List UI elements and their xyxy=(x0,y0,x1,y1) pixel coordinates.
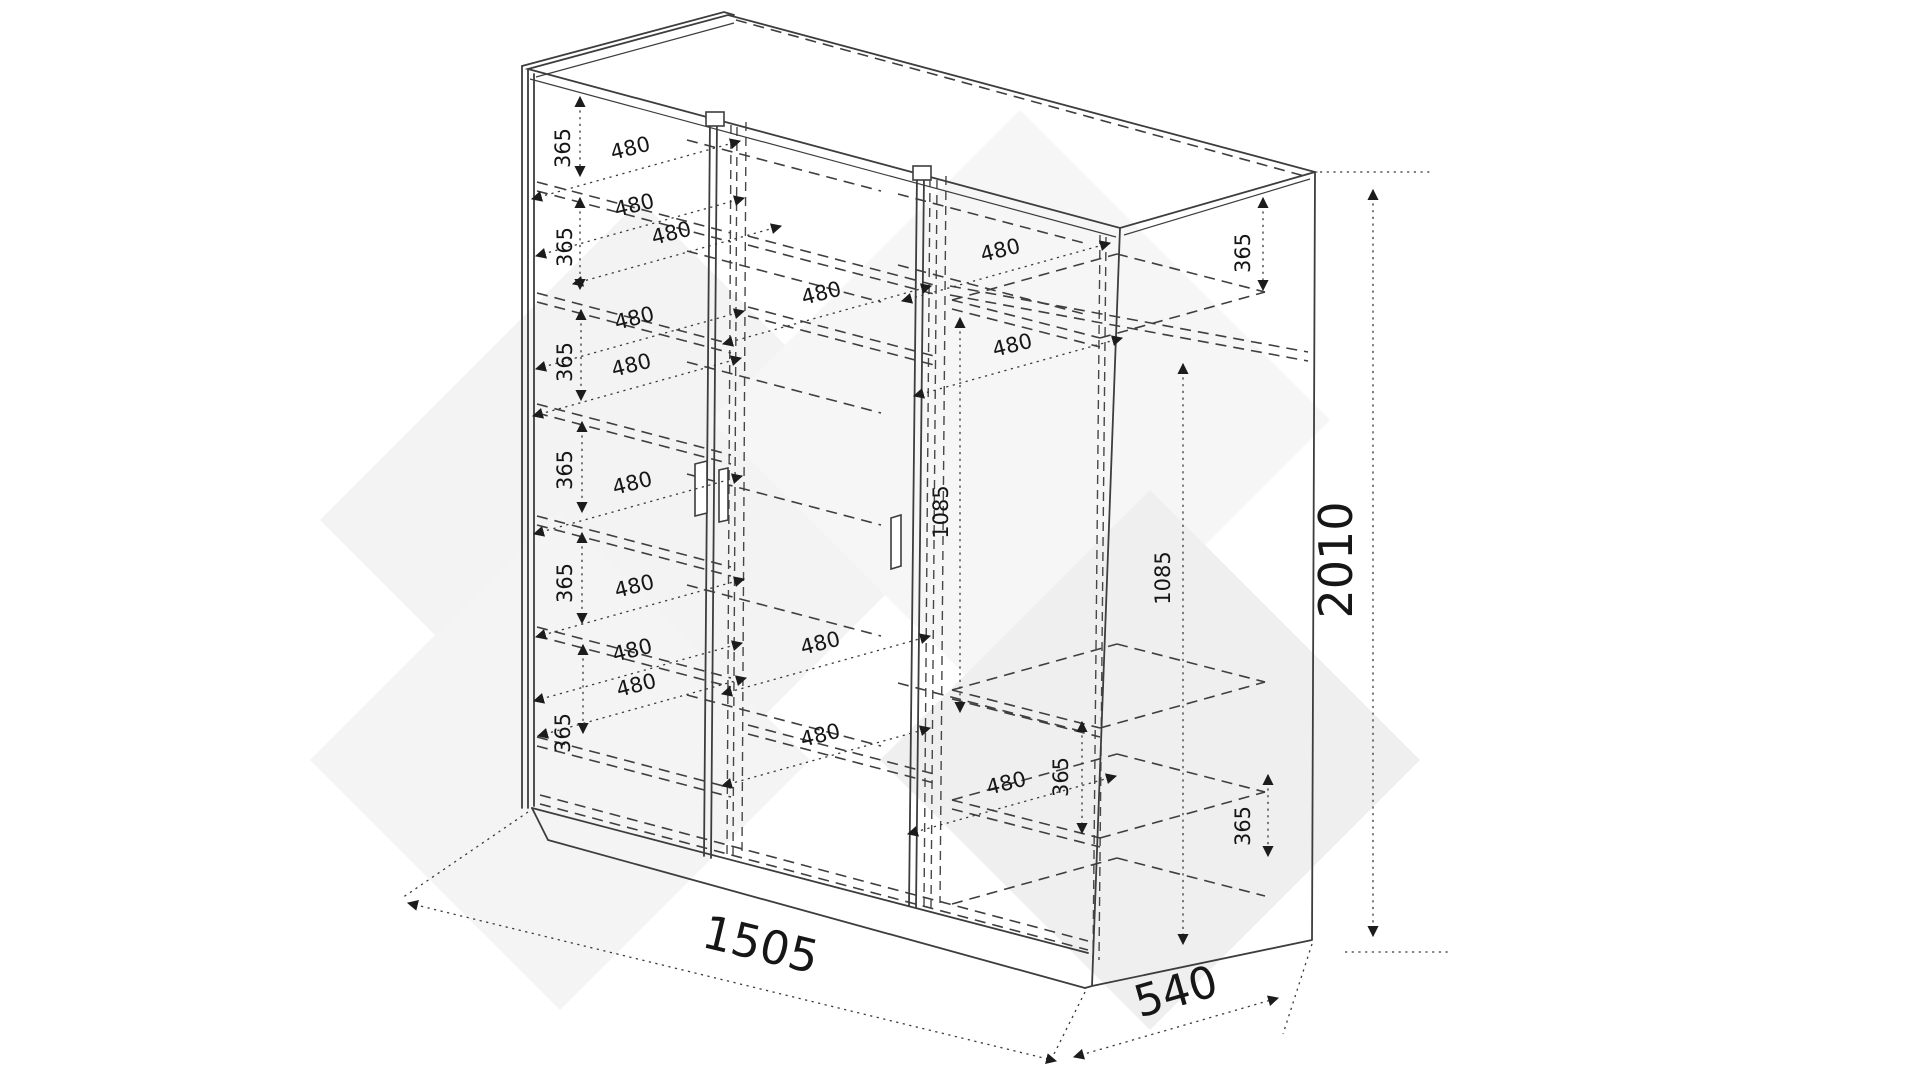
dim-label-1505: 1505 xyxy=(698,905,824,985)
dim-label-480: 480 xyxy=(798,719,843,752)
door-handle-right xyxy=(891,515,901,569)
technical-drawing-page: 3653653653653653653653653654804804804804… xyxy=(0,0,1920,1080)
divider-top-cap-right xyxy=(913,166,931,180)
dim-label-480: 480 xyxy=(608,132,653,165)
dim-label-365: 365 xyxy=(553,450,577,490)
dim-label-365: 365 xyxy=(1231,233,1255,273)
dim-label-365: 365 xyxy=(553,227,577,267)
dim-label-1085: 1085 xyxy=(929,485,953,538)
divider-top-cap-left xyxy=(706,112,724,126)
dim-label-365: 365 xyxy=(551,713,575,753)
dim-label-365: 365 xyxy=(553,563,577,603)
door-handle-middle xyxy=(719,468,728,522)
wardrobe-drawing-canvas: 3653653653653653653653653654804804804804… xyxy=(0,0,1920,1080)
dim-label-1085: 1085 xyxy=(1151,551,1175,604)
dim-label-2010: 2010 xyxy=(1309,501,1363,618)
dim-label-365: 365 xyxy=(551,128,575,168)
dim-label-365: 365 xyxy=(553,342,577,382)
dim-label-365: 365 xyxy=(1231,806,1255,846)
dim-label-365: 365 xyxy=(1049,757,1073,797)
